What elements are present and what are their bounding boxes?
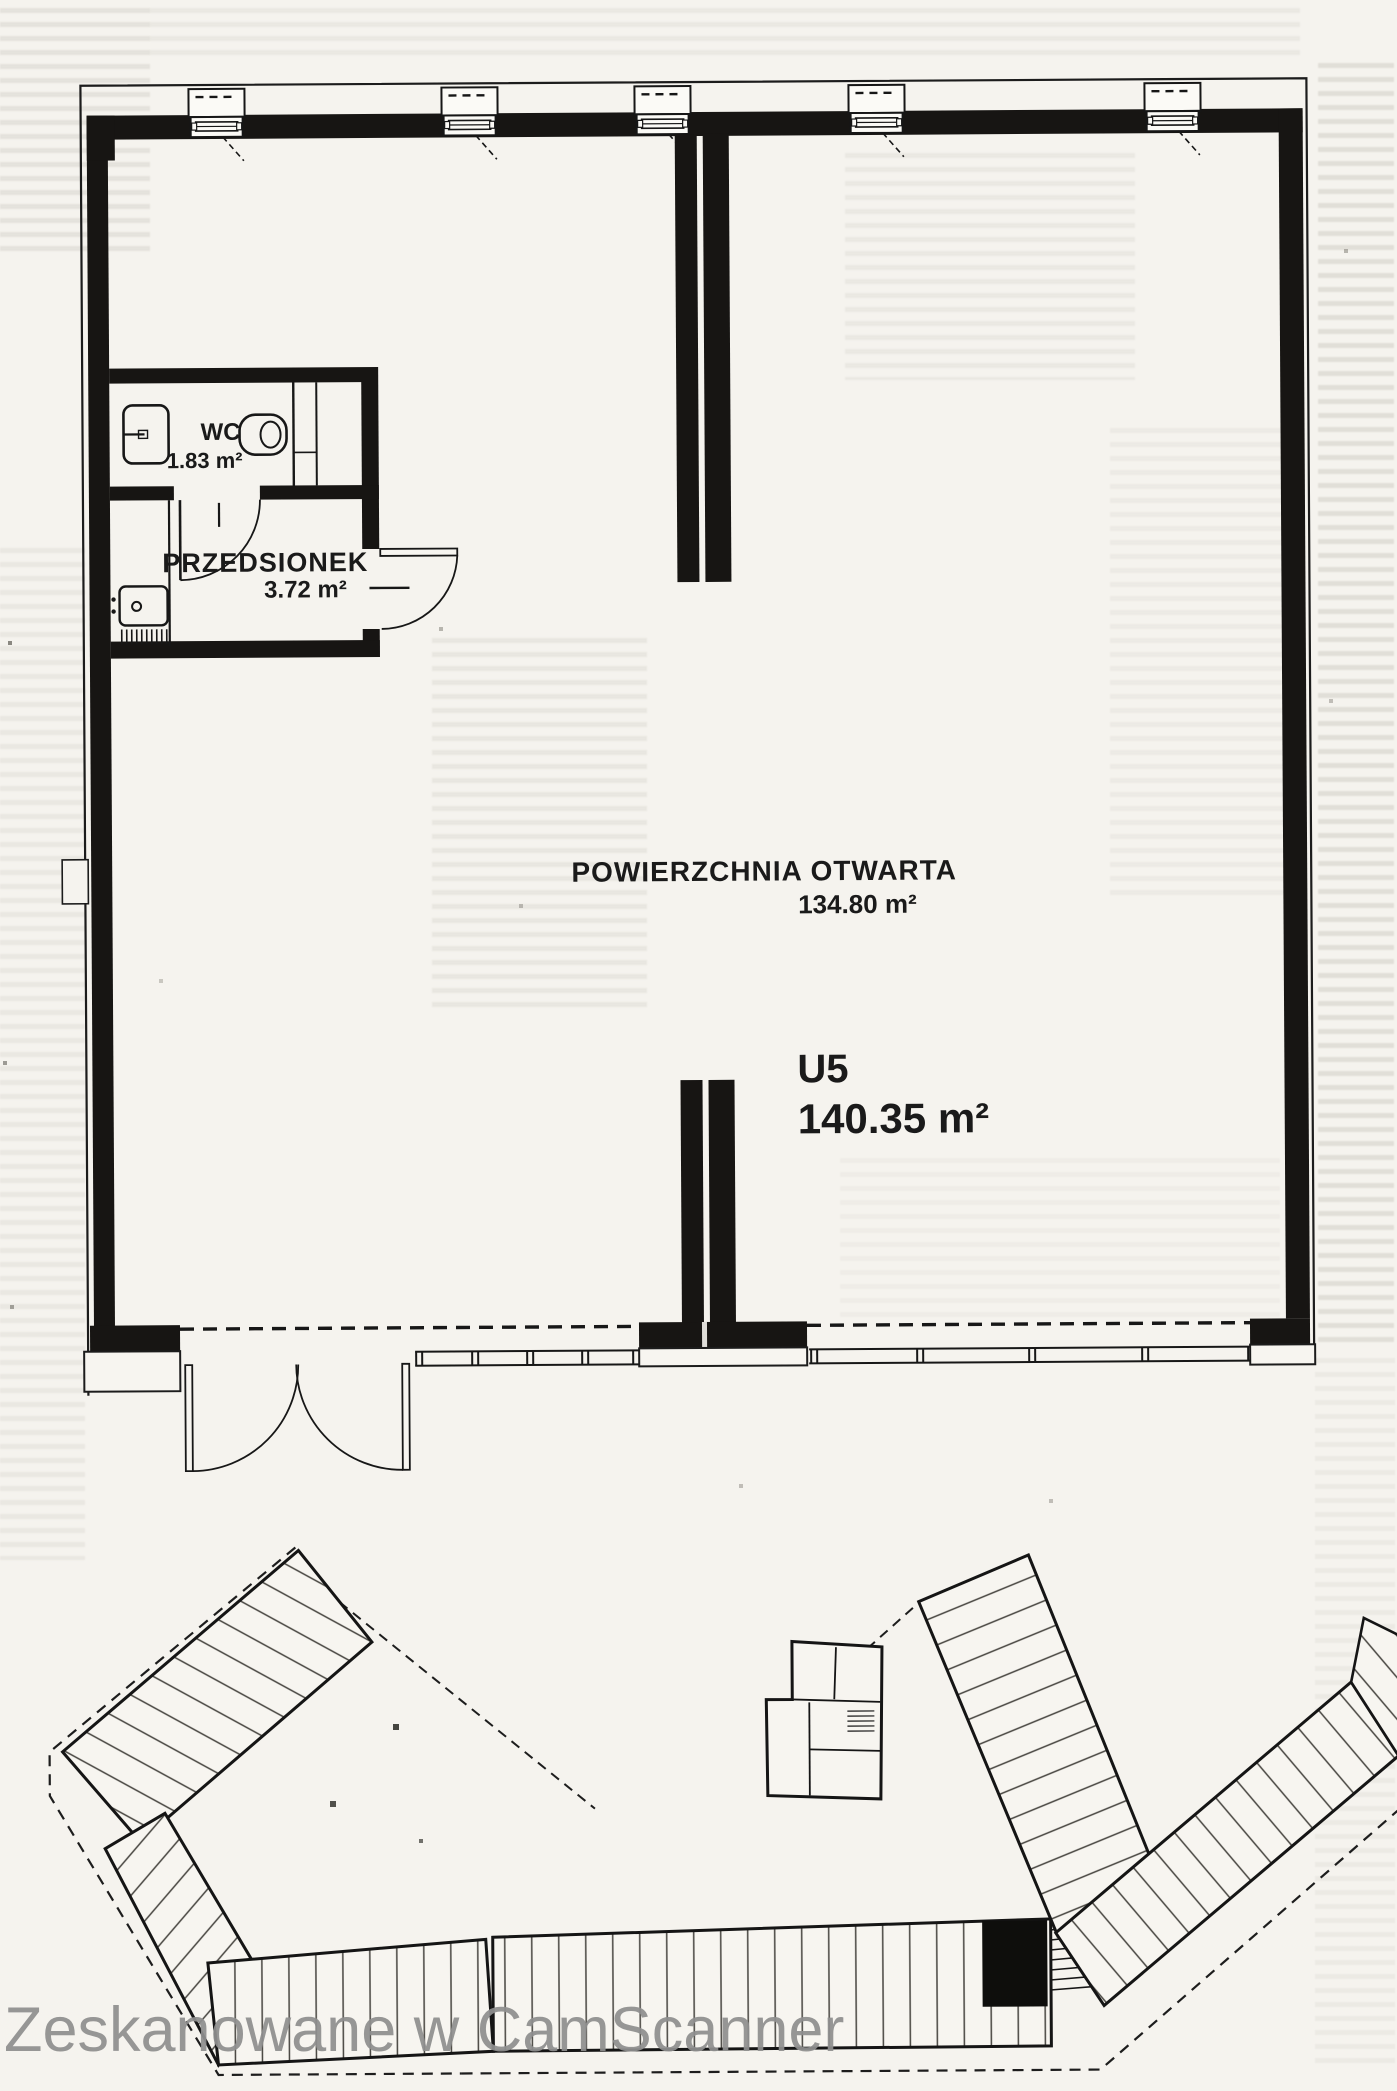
sill-right xyxy=(1250,1344,1315,1364)
site-unit-u5-highlight xyxy=(983,1921,1048,2006)
wc-duct-partition-2 xyxy=(316,382,317,485)
site-building-left-upper-bar xyxy=(61,1550,373,1842)
camscanner-watermark: Zeskanowane w CamScanner xyxy=(4,1994,844,2066)
knob-dot xyxy=(111,597,115,601)
floor-plan-drawing: WC 1.83 m² PRZEDSIONEK 3.72 m² POWIERZCH… xyxy=(0,0,1397,2091)
wall-wc-bottom-left xyxy=(110,486,174,500)
vestibule-door xyxy=(369,548,457,629)
center-chunk-joint xyxy=(702,1322,707,1348)
wc-duct-partition xyxy=(293,382,294,485)
top-wall-vent-icon xyxy=(1144,83,1200,155)
window-band-right xyxy=(809,1347,1250,1364)
room-area-wc: 1.83 m² xyxy=(167,448,243,473)
wc-przedsionek-block xyxy=(109,366,458,658)
wall-left-corner-thickening xyxy=(87,116,115,161)
lintel-dashed-right xyxy=(807,1323,1250,1326)
washbasin-icon xyxy=(123,405,168,463)
room-label-przedsionek: PRZEDSIONEK xyxy=(162,547,368,578)
wall-bottom-left-chunk xyxy=(90,1325,180,1352)
vestibule-door-swing-arc xyxy=(381,555,457,628)
entrance-door-leaf-left xyxy=(185,1365,193,1471)
kitchen-sink-icon xyxy=(119,586,167,625)
top-wall-vent-icon xyxy=(441,87,497,159)
wall-left xyxy=(87,116,116,1352)
left-wall-outer-notch xyxy=(62,860,88,904)
wall-block-right-upper xyxy=(361,382,379,549)
room-area-przedsionek: 3.72 m² xyxy=(264,576,347,604)
sink-drain xyxy=(132,602,141,611)
room-label-wc: WC xyxy=(200,419,240,446)
top-wall-vent-icon xyxy=(848,85,904,157)
vestibule-door-leaf xyxy=(380,548,457,555)
wall-right xyxy=(1279,108,1310,1318)
lintel-dashed-left xyxy=(180,1326,639,1329)
wall-block-top xyxy=(109,367,378,384)
sill-center xyxy=(639,1347,807,1366)
bottom-wall-assembly xyxy=(84,1318,1316,1472)
scanned-floor-plan-page: WC 1.83 m² PRZEDSIONEK 3.72 m² POWIERZCH… xyxy=(0,0,1397,2091)
central-wall-lower xyxy=(680,1080,735,1324)
room-label-powierzchnia-otwarta: POWIERZCHNIA OTWARTA xyxy=(571,854,957,887)
entrance-door-leaf-right xyxy=(402,1364,410,1470)
plan-labels: WC 1.83 m² PRZEDSIONEK 3.72 m² POWIERZCH… xyxy=(161,414,989,1146)
sill-left xyxy=(84,1351,180,1392)
unit-id-label: U5 xyxy=(797,1047,848,1091)
unit-area-label: 140.35 m² xyxy=(798,1094,990,1142)
window-band-left xyxy=(415,1350,639,1365)
top-wall-vent-icon xyxy=(188,89,244,161)
unit-plan: WC 1.83 m² PRZEDSIONEK 3.72 m² POWIERZCH… xyxy=(57,78,1315,1472)
central-wall-upper xyxy=(675,134,732,582)
entrance-double-door xyxy=(185,1364,410,1471)
site-building-center-block xyxy=(766,1641,883,1800)
entrance-door-arc-right xyxy=(296,1364,403,1471)
entrance-door-arc-left xyxy=(192,1364,299,1471)
wall-wc-bottom-right xyxy=(260,485,379,500)
toilet-icon xyxy=(239,415,286,455)
knob-dot xyxy=(111,609,115,613)
courtyard-dashed-line xyxy=(340,1601,595,1811)
wall-bottom-right-chunk xyxy=(1250,1318,1310,1344)
kitchenette xyxy=(111,500,170,646)
room-area-powierzchnia-otwarta: 134.80 m² xyxy=(798,889,917,920)
wall-bottom-center-chunk xyxy=(639,1321,807,1348)
